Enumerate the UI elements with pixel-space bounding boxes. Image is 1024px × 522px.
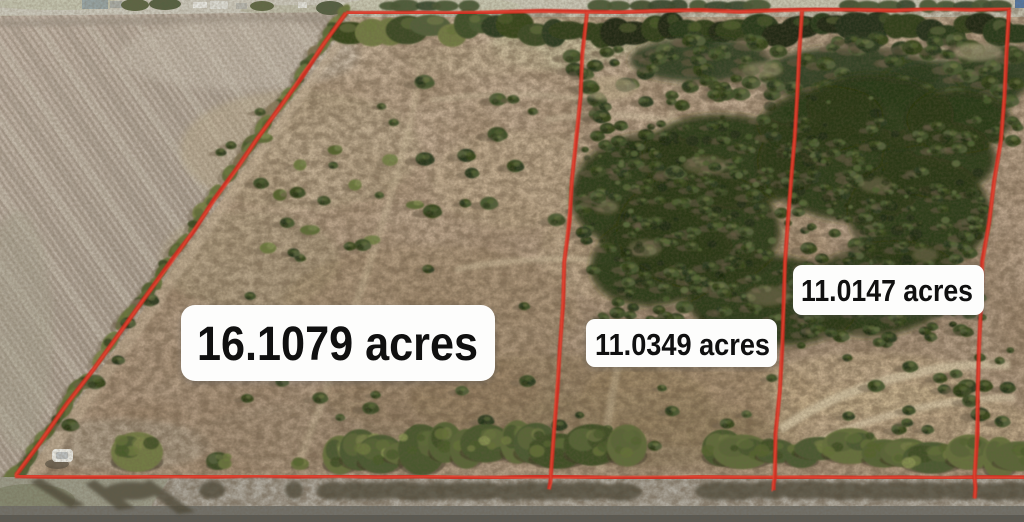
svg-text:16.1079 acres: 16.1079 acres [197, 318, 478, 371]
svg-text:11.0349 acres: 11.0349 acres [595, 327, 770, 362]
svg-text:11.0147 acres: 11.0147 acres [801, 273, 973, 308]
